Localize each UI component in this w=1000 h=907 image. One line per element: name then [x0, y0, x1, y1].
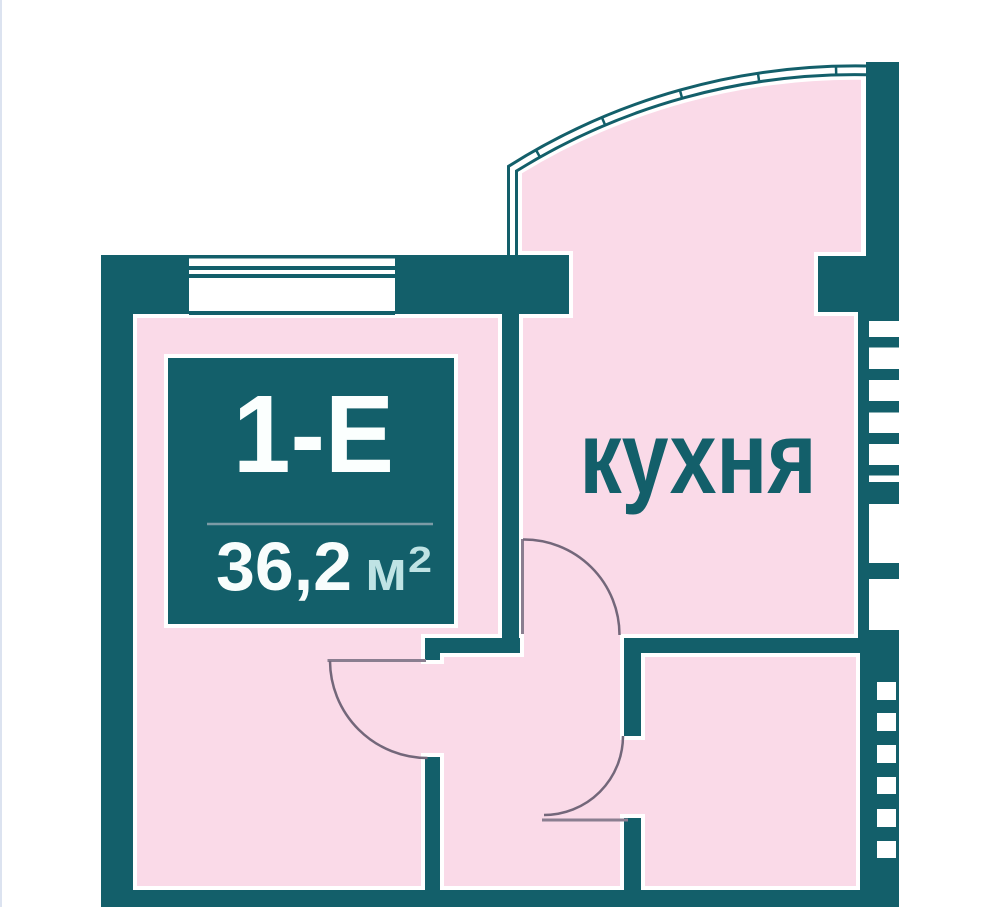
- svg-text:36,2: 36,2: [216, 528, 352, 605]
- svg-text:м: м: [365, 539, 407, 603]
- svg-text:1-E: 1-E: [233, 373, 394, 496]
- svg-text:2: 2: [408, 539, 432, 580]
- svg-text:кухня: кухня: [580, 400, 817, 515]
